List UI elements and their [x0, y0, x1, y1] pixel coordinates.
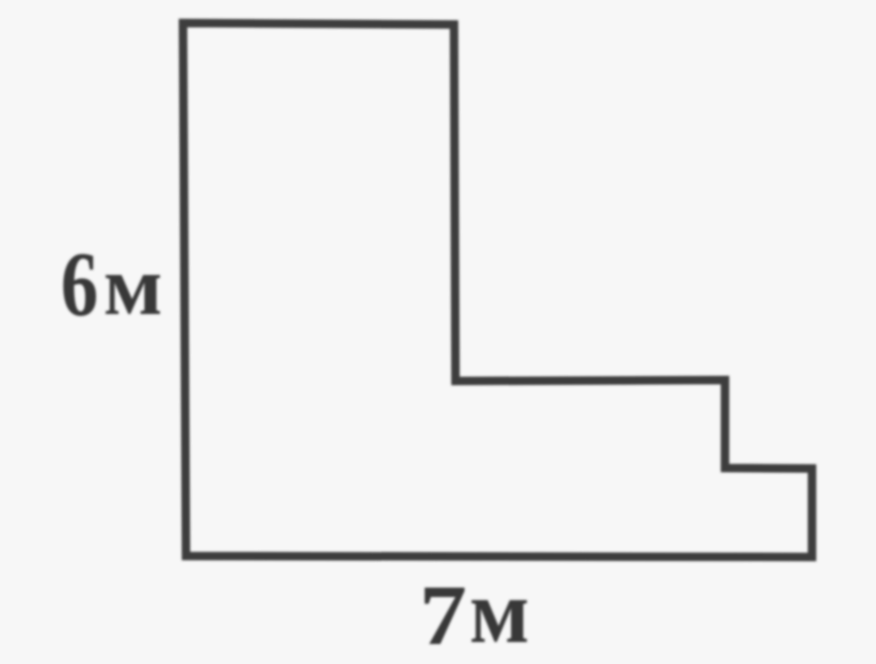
svg-text:м: м — [469, 562, 529, 662]
svg-text:7: 7 — [419, 567, 467, 663]
svg-text:6: 6 — [61, 234, 98, 336]
svg-text:м: м — [103, 238, 162, 333]
